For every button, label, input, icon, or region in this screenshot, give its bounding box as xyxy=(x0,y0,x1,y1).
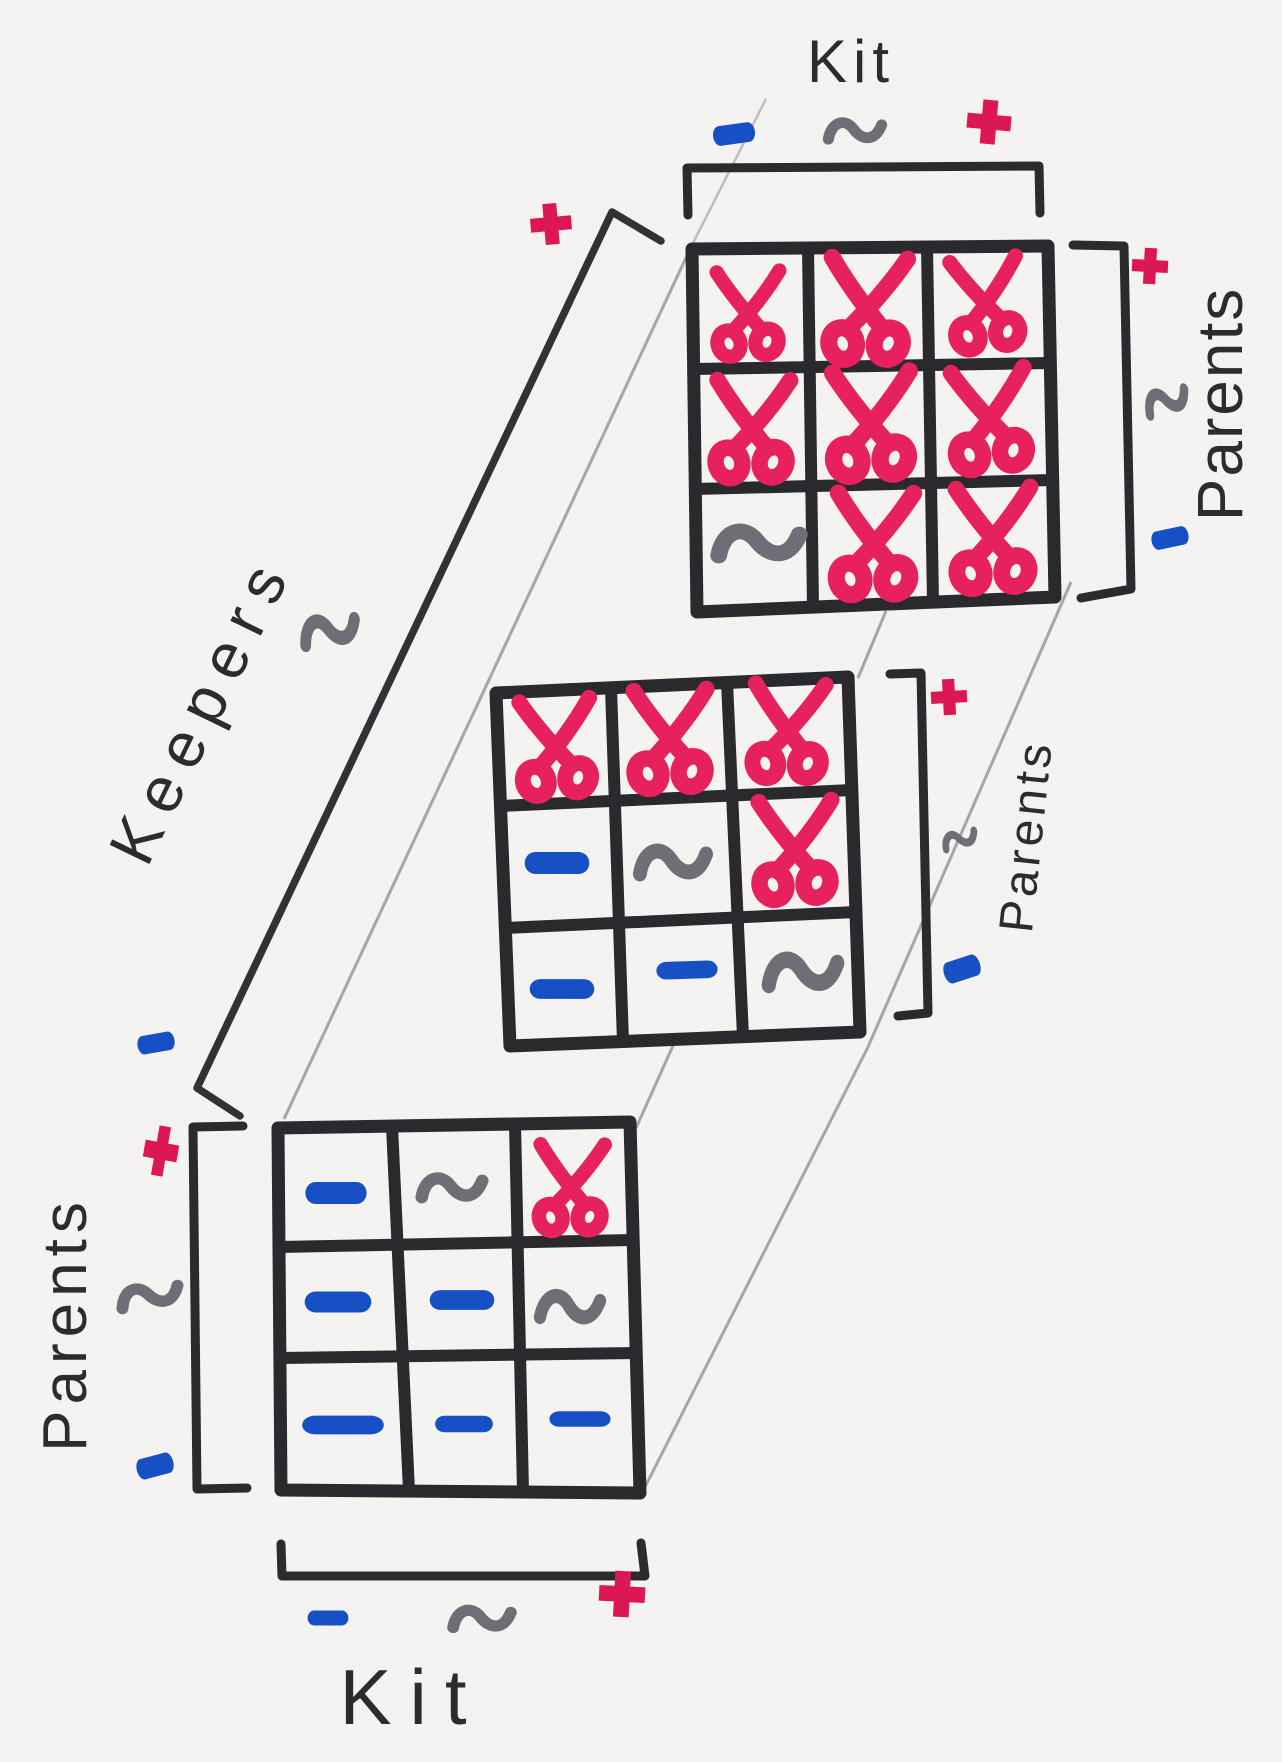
svg-text:Kit: Kit xyxy=(339,1653,484,1741)
svg-text:Parents: Parents xyxy=(31,1196,100,1452)
svg-text:Kit: Kit xyxy=(807,28,895,95)
svg-text:Parents: Parents xyxy=(1184,287,1256,522)
